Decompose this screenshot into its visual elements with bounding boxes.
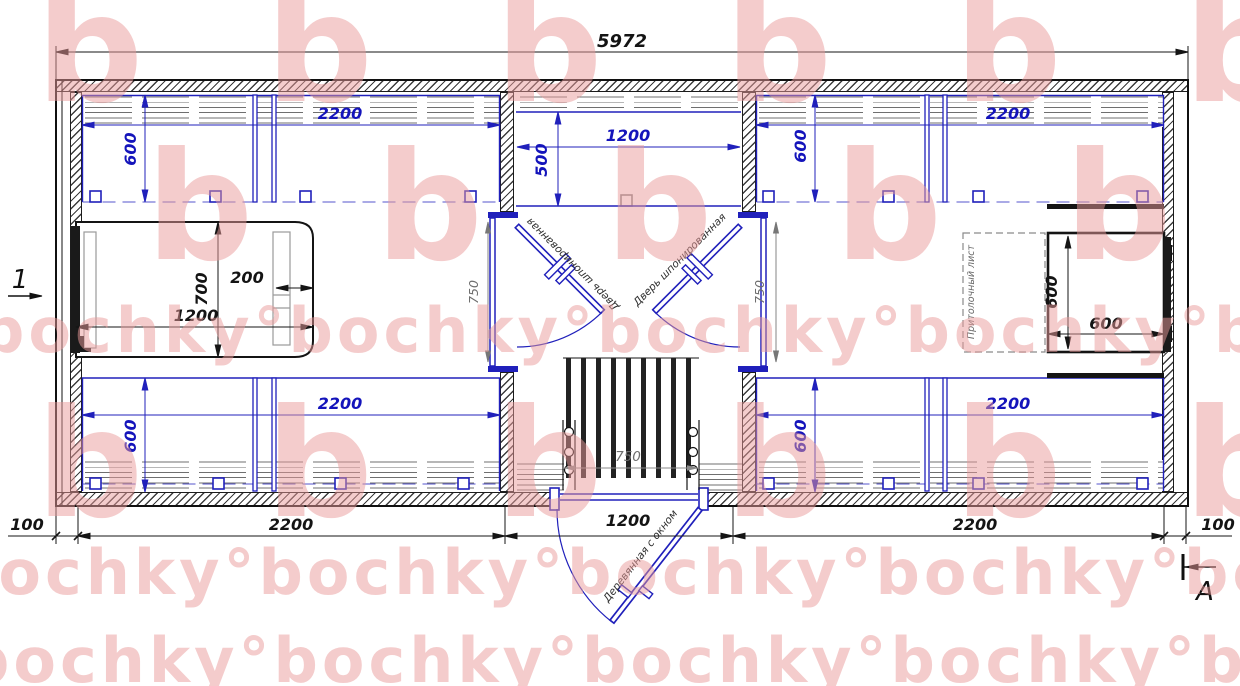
dim-grate-width: 750 [615,449,641,465]
dim-table-width: 600 [1089,314,1122,333]
dim-bunk-length-bl: 2200 [318,394,363,413]
dim-bed-width: 700 [192,272,211,305]
dim-shelf-width: 1200 [606,126,651,145]
entry-grate [563,358,699,490]
dim-table-depth: 600 [1042,275,1061,308]
dim-bottom-2200-left: 2200 [269,515,314,534]
plan-linework: 5972 [0,0,1240,686]
section-1-label: 1 [12,265,29,295]
dim-bunk-length-tr: 2200 [986,104,1031,123]
dim-bunk-depth-tr: 600 [791,129,810,162]
door-right-label: Дверь шпонированная [630,211,728,309]
dim-overall-label: 5972 [597,31,647,52]
dim-bottom-100-right: 100 [1201,515,1234,534]
dim-bottom-100-left: 100 [10,515,43,534]
dim-bed-length: 1200 [174,306,219,325]
dim-bunk-length-br: 2200 [986,394,1031,413]
section-mark-a: А [1183,554,1216,607]
section-a-label: А [1194,577,1214,607]
dim-door-opening-right: 750 [752,280,767,304]
dim-bottom-1200: 1200 [606,511,651,530]
section-mark-1: 1 [8,265,42,299]
dim-bunk-depth-tl: 600 [121,132,140,165]
dim-bed-shelf: 200 [230,268,263,287]
ceiling-sheet-label: Притолочный лист [966,244,977,339]
right-wall-window [1164,237,1171,352]
left-wall-window [71,226,80,353]
dim-bottom-2200-right: 2200 [953,515,998,534]
door-left-label: Дверь шпонированная [524,215,622,313]
dim-bunk-depth-br: 600 [791,419,810,452]
dim-door-opening-left: 750 [466,280,481,304]
dim-overall: 5972 [56,31,1188,80]
table-right-room [963,204,1171,378]
dim-shelf-depth: 500 [532,143,551,176]
dim-bunk-depth-bl: 600 [121,419,140,452]
dim-bunk-length-tl: 2200 [318,104,363,123]
floor-plan-canvas: 5972 [0,0,1240,686]
